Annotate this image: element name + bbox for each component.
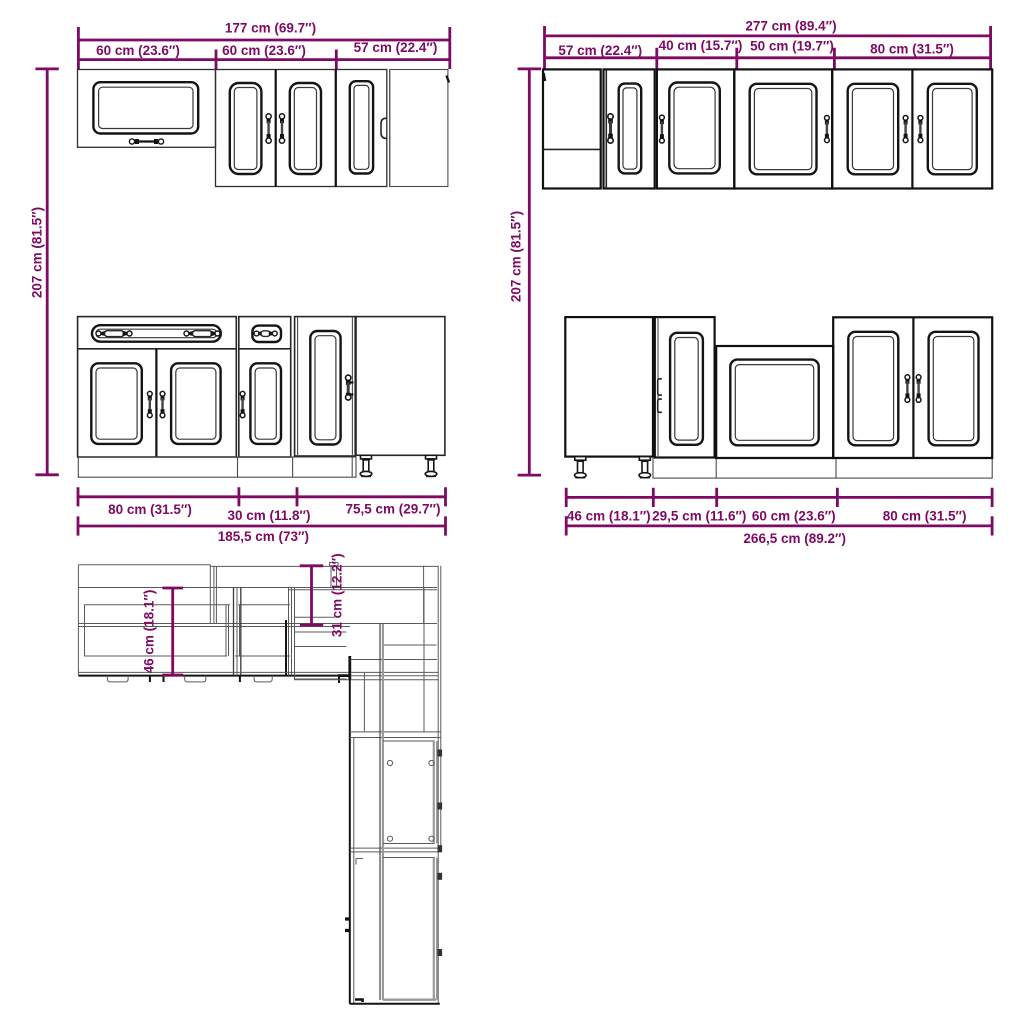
- svg-text:60 cm (23.6″): 60 cm (23.6″): [96, 43, 180, 58]
- svg-text:46 cm (18.1″): 46 cm (18.1″): [142, 590, 157, 674]
- svg-text:185,5 cm (73″): 185,5 cm (73″): [218, 529, 309, 544]
- svg-text:50 cm (19.7″): 50 cm (19.7″): [750, 38, 834, 53]
- svg-text:57 cm (22.4″): 57 cm (22.4″): [558, 43, 642, 58]
- svg-text:277 cm (89.4″): 277 cm (89.4″): [745, 19, 836, 34]
- svg-text:177 cm (69.7″): 177 cm (69.7″): [225, 21, 316, 36]
- svg-text:29,5 cm (11.6″): 29,5 cm (11.6″): [652, 508, 746, 523]
- svg-text:31 cm (12.2″): 31 cm (12.2″): [330, 553, 345, 637]
- svg-text:207 cm (81.5″): 207 cm (81.5″): [509, 211, 524, 302]
- svg-text:60 cm (23.6″): 60 cm (23.6″): [222, 43, 306, 58]
- svg-text:75,5 cm (29.7″): 75,5 cm (29.7″): [345, 501, 440, 516]
- svg-text:46 cm (18.1″): 46 cm (18.1″): [567, 508, 651, 523]
- svg-text:80 cm (31.5″): 80 cm (31.5″): [870, 41, 954, 56]
- svg-text:266,5 cm (89.2″): 266,5 cm (89.2″): [743, 531, 846, 546]
- svg-text:60 cm (23.6″): 60 cm (23.6″): [752, 508, 836, 523]
- svg-text:40 cm (15.7″): 40 cm (15.7″): [659, 38, 743, 53]
- svg-text:207 cm (81.5″): 207 cm (81.5″): [30, 207, 45, 298]
- svg-text:30 cm (11.8″): 30 cm (11.8″): [227, 508, 310, 523]
- svg-text:80 cm (31.5″): 80 cm (31.5″): [883, 508, 967, 523]
- svg-text:57 cm (22.4″): 57 cm (22.4″): [354, 40, 438, 55]
- svg-text:80 cm (31.5″): 80 cm (31.5″): [108, 502, 192, 517]
